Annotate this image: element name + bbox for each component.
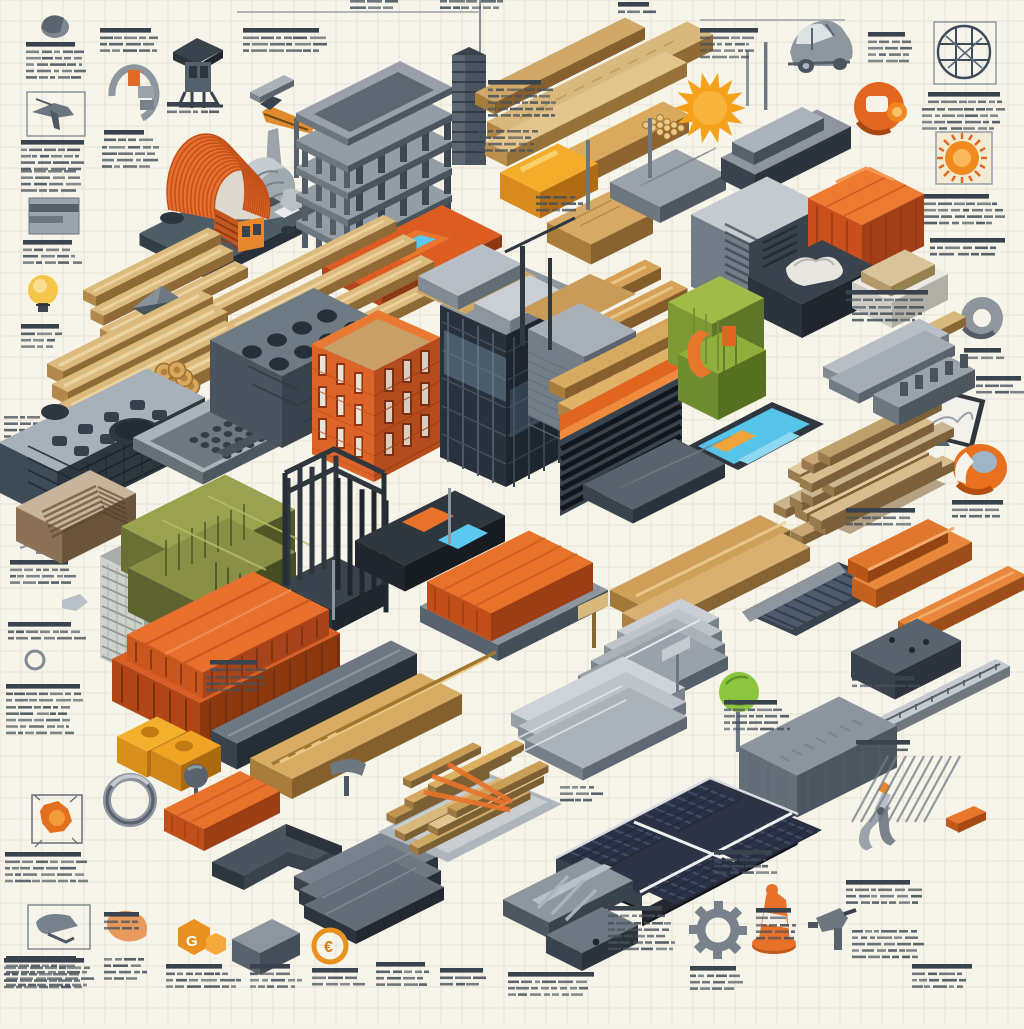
- svg-text:€: €: [324, 939, 333, 956]
- svg-text:G: G: [186, 933, 198, 950]
